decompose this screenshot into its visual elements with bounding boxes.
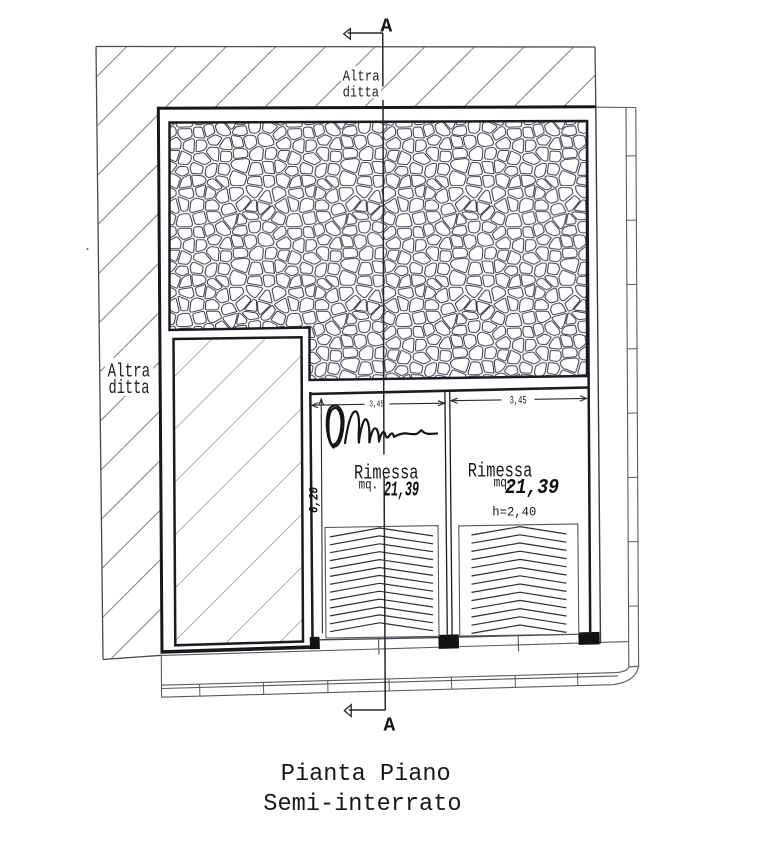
svg-text:Altra: Altra [343,68,380,85]
svg-text:21,39: 21,39 [505,476,559,500]
svg-text:Semi-interrato: Semi-interrato [263,791,461,818]
svg-text:ditta: ditta [109,377,150,399]
svg-text:A: A [381,16,393,38]
svg-text:21,39: 21,39 [384,480,419,503]
svg-text:h=2,40: h=2,40 [492,506,536,520]
svg-text:3,45: 3,45 [510,395,527,407]
svg-text:6,20: 6,20 [307,487,322,513]
svg-text:3,45: 3,45 [369,399,384,410]
svg-text:mq.: mq. [359,477,379,493]
svg-text:Pianta Piano: Pianta Piano [281,761,451,788]
svg-text:A: A [384,715,396,737]
svg-text:ditta: ditta [343,85,380,102]
